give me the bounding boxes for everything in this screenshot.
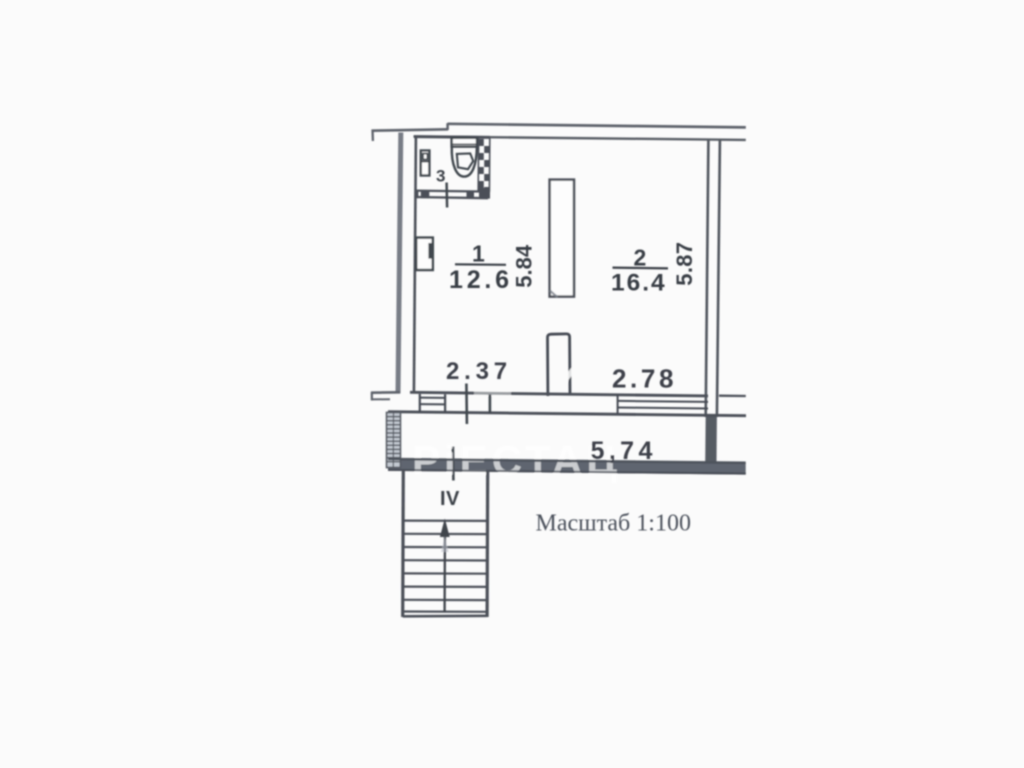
svg-text:IV: IV [440, 488, 460, 510]
svg-text:5,74: 5,74 [591, 437, 657, 465]
svg-text:2.78: 2.78 [612, 364, 677, 394]
svg-text:5.84: 5.84 [512, 244, 537, 288]
svg-text:3: 3 [436, 167, 445, 186]
svg-text:5.87: 5.87 [672, 242, 697, 286]
svg-text:2.37: 2.37 [446, 358, 512, 385]
svg-text:12.6: 12.6 [449, 266, 513, 294]
svg-text:1: 1 [472, 241, 485, 267]
svg-text:16.4: 16.4 [611, 270, 667, 297]
svg-text:Масштаб 1:100: Масштаб 1:100 [536, 511, 691, 537]
svg-text:2: 2 [634, 245, 647, 271]
